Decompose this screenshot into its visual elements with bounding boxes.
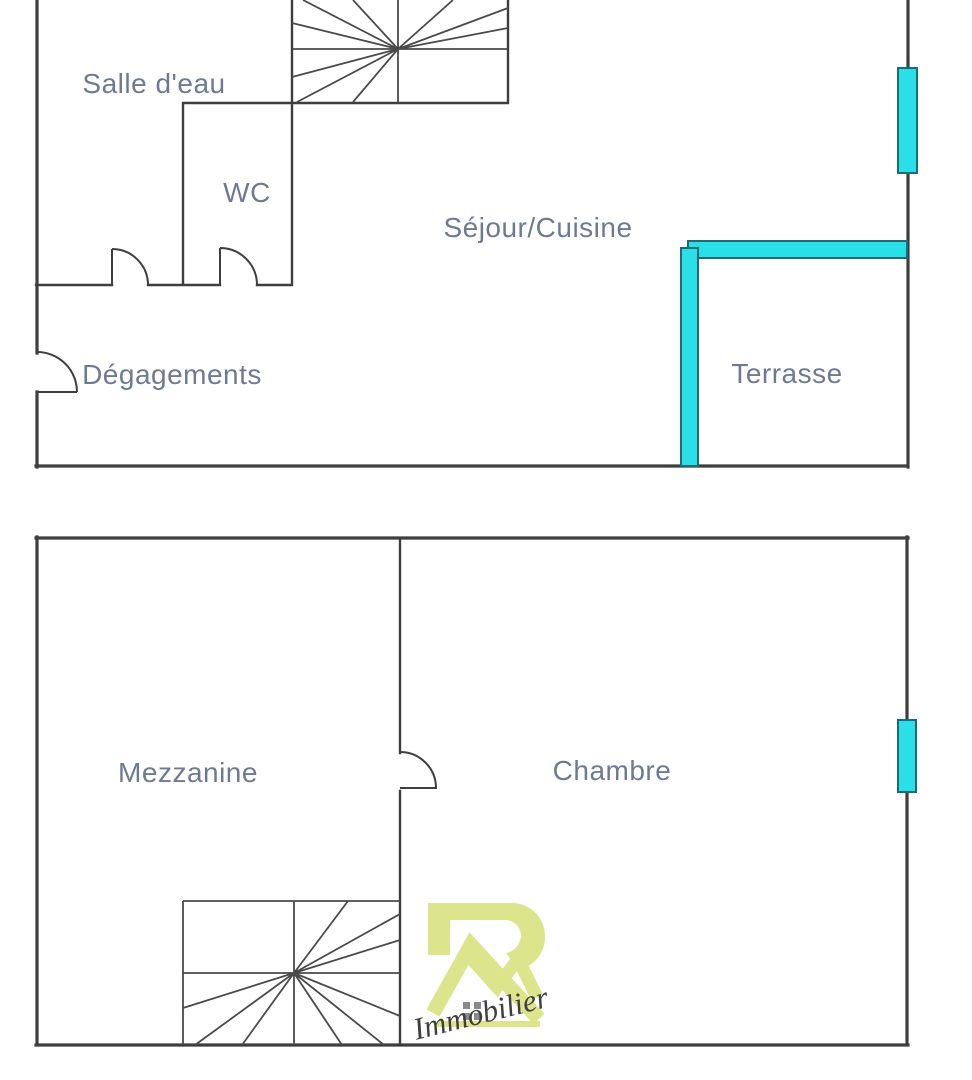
room-label-salle-deau: Salle d'eau — [82, 68, 225, 100]
upper-staircase — [292, 0, 508, 102]
room-label-sejour-cuisine: Séjour/Cuisine — [443, 212, 632, 244]
room-label-mezzanine: Mezzanine — [118, 757, 258, 789]
door-swing — [400, 752, 437, 788]
logo-r-stem — [428, 903, 450, 955]
room-label-wc: WC — [223, 177, 271, 209]
room-label-chambre: Chambre — [553, 755, 672, 787]
stair-treads — [183, 901, 400, 1045]
terrace-glazing-horizontal — [688, 241, 907, 258]
room-label-terrasse: Terrasse — [731, 358, 842, 390]
floor-plan-linework — [0, 0, 972, 1080]
upper-partition-walls — [36, 0, 508, 285]
stair-treads — [292, 0, 508, 102]
lower-staircase — [183, 901, 400, 1045]
door-swing — [220, 248, 257, 285]
room-label-degagements: Dégagements — [82, 359, 262, 391]
door-swing — [112, 249, 148, 285]
window-glazing — [898, 68, 917, 173]
door-swing — [37, 352, 77, 392]
window-glazing — [898, 720, 916, 792]
floor-plan-canvas: Salle d'eau WC Séjour/Cuisine Dégagement… — [0, 0, 972, 1080]
upper-glazing — [681, 68, 917, 466]
terrace-glazing-vertical — [681, 248, 698, 466]
